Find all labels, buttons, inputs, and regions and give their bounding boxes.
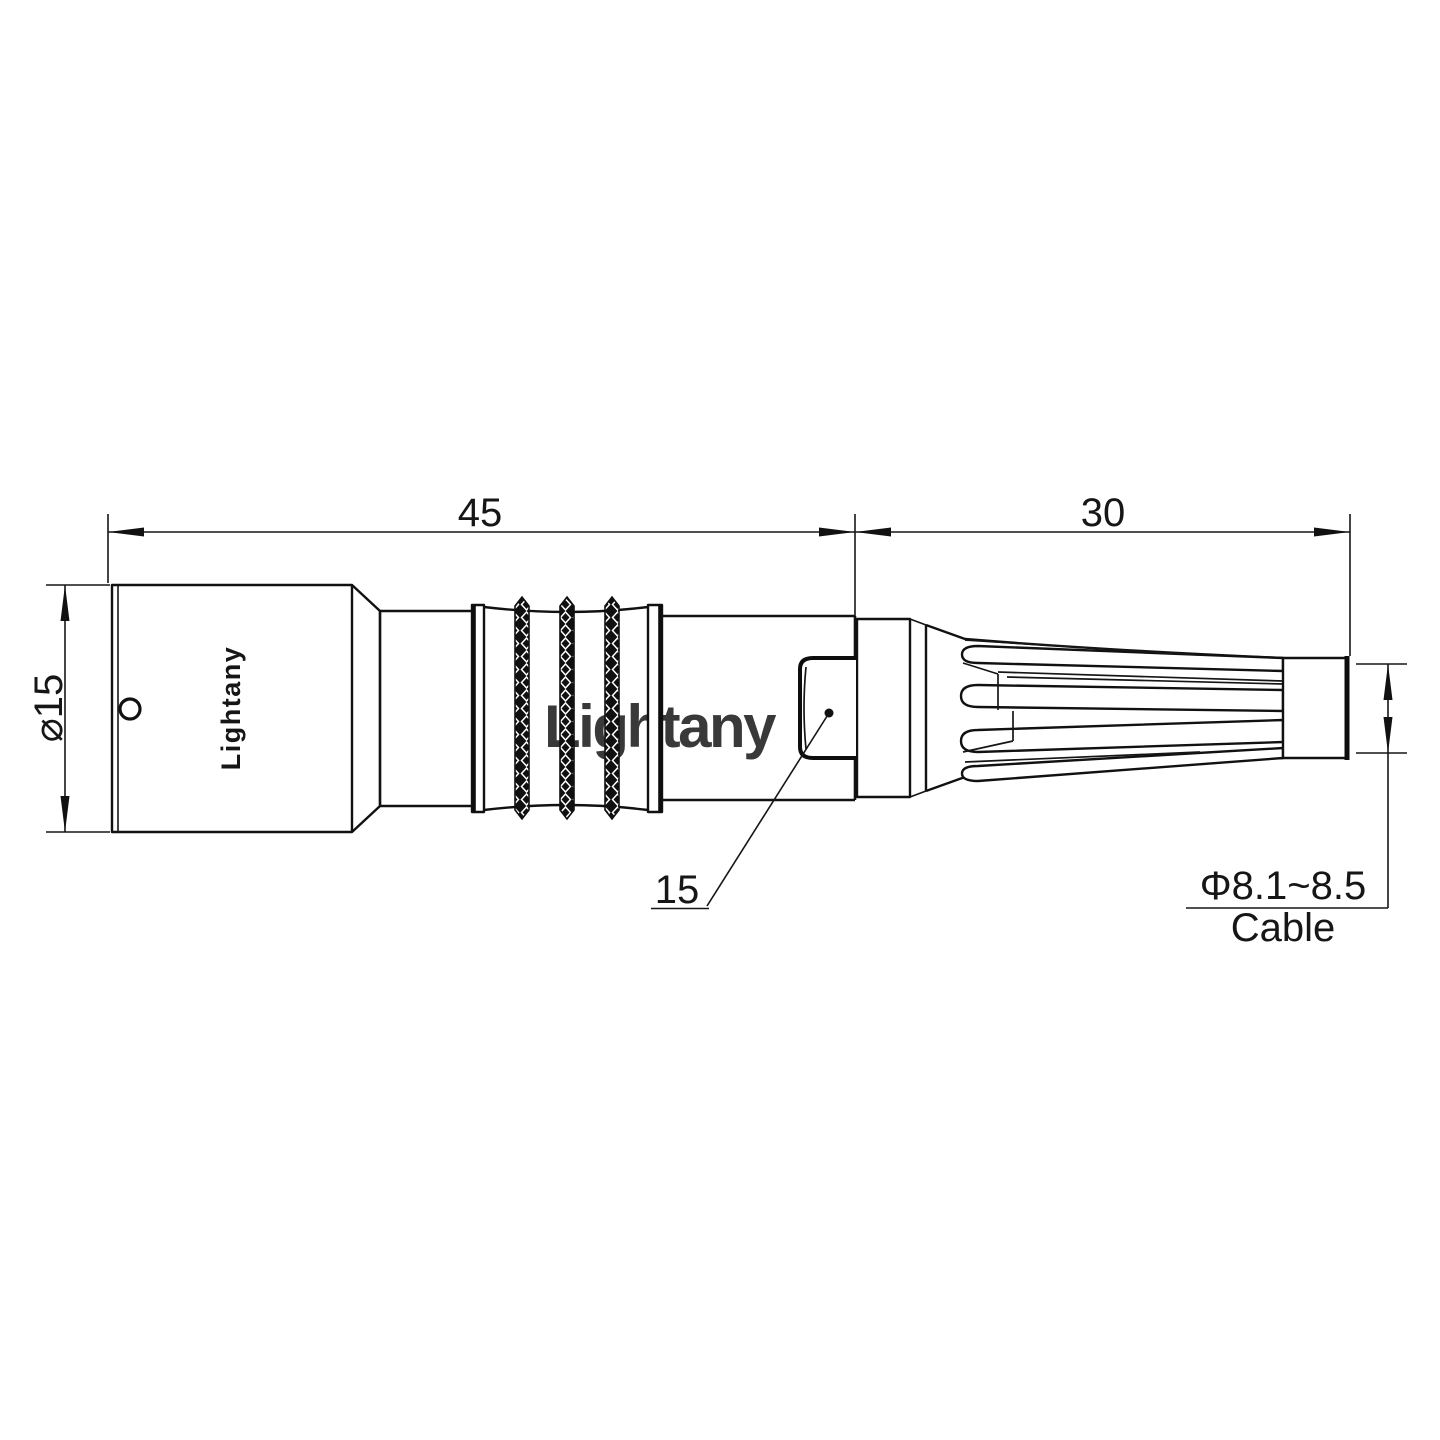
boot-collar — [857, 619, 910, 797]
arrowhead — [1384, 717, 1393, 753]
drawing-canvas: Lightany Lightany — [0, 0, 1440, 1440]
dim-body-diameter-label: ⌀15 — [27, 674, 71, 743]
boot-collar-chamfer-top — [910, 619, 926, 625]
engraving-text: Lightany — [216, 646, 246, 771]
boot-collar-chamfer-bottom — [910, 791, 926, 797]
cable-ferrule — [1283, 658, 1348, 758]
cable-diameter-label: Φ8.1~8.5 — [1200, 864, 1366, 908]
cable-caption-label: Cable — [1231, 906, 1336, 950]
arrowhead — [61, 585, 70, 621]
arrowhead — [108, 528, 144, 537]
boot-finger — [961, 685, 1283, 711]
knurl-band — [515, 597, 529, 819]
dim-overall-length-label: 45 — [458, 491, 503, 535]
boot-finger — [962, 748, 1283, 781]
arrowhead — [61, 796, 70, 832]
arrowhead — [819, 528, 855, 537]
knurl-band — [560, 597, 574, 819]
boot-slot-line — [963, 663, 998, 674]
arrowhead — [1384, 664, 1393, 700]
boot-finger — [961, 720, 1283, 752]
arrowhead — [1314, 528, 1350, 537]
connector-rear-shell — [112, 585, 380, 832]
dim-boot-length-label: 30 — [1081, 491, 1126, 535]
connector-side-view-drawing: Lightany Lightany — [0, 0, 1440, 1440]
leader-note-label: 15 — [655, 868, 700, 912]
latch-window — [800, 658, 856, 758]
knurl-band — [605, 597, 619, 819]
arrowhead — [855, 528, 891, 537]
